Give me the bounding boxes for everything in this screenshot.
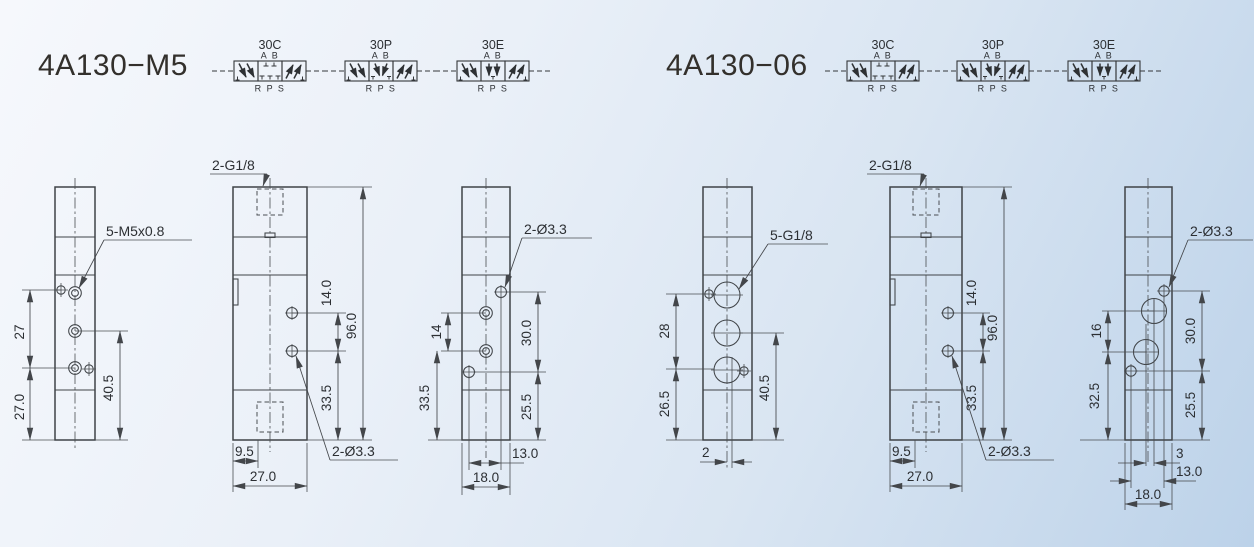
valve-symbol-30e: 30E A B R P S: [435, 38, 551, 94]
dim-height: 96.0: [985, 315, 1000, 341]
dim-stagger: 3: [1176, 446, 1184, 461]
symbol-top-ports: A B: [874, 51, 893, 61]
callout-mount-holes: 2-Ø3.3: [1169, 223, 1253, 287]
symbol-bottom-ports: R P S: [978, 84, 1009, 94]
view-m5-front: 27 27.0 40.5 5-M5x0.8: [12, 178, 192, 450]
dim-hole-pitch: 14.0: [319, 280, 334, 306]
dim-hole-span: 13.0: [1176, 464, 1202, 479]
symbol-top-ports: A B: [372, 51, 391, 61]
callout-mount-holes: 2-Ø3.3: [505, 221, 592, 287]
symbol-top-ports: A B: [1095, 51, 1114, 61]
symbol-top-ports: A B: [484, 51, 503, 61]
view-06-side: 14.0 96.0 33.5 9.5 27.0 2-G1/8 2-Ø3.3: [867, 157, 1054, 492]
callout-thread: 5-M5x0.8: [79, 223, 192, 288]
model-title: 4A130−M5: [38, 49, 188, 82]
dim-hole-bottom: 33.5: [319, 385, 334, 411]
callout-label: 2-Ø3.3: [524, 221, 567, 237]
dim-hole-pitch: 14.0: [964, 280, 979, 306]
symbol-bottom-ports: R P S: [255, 84, 286, 94]
dim-port-pitch: 16: [1089, 323, 1104, 338]
valve-symbol-30c: 30C A B R P S: [212, 38, 328, 94]
dim-port-pitch: 14: [429, 324, 444, 340]
callout-label: 2-Ø3.3: [988, 443, 1031, 459]
valve-symbol-30c: 30C A B R P S: [825, 38, 941, 94]
dim-port-offset: 9.5: [892, 444, 911, 459]
dim-bottom-port: 27.0: [12, 394, 27, 420]
callout-label: 2-Ø3.3: [332, 443, 375, 459]
valve-symbol-30p: 30P A B R P S: [323, 38, 439, 94]
dim-port-pitch: 28: [657, 323, 672, 338]
dim-port-pitch: 27: [12, 324, 27, 339]
dim-port-bottom: 32.5: [1087, 383, 1102, 409]
symbol-top-ports: A B: [984, 51, 1003, 61]
dim-bottom-port: 26.5: [657, 391, 672, 417]
dim-height: 96.0: [344, 313, 359, 339]
callout-label: 5-M5x0.8: [106, 223, 165, 239]
callout-mount-holes: 2-Ø3.3: [296, 356, 398, 460]
dim-right: 40.5: [757, 375, 772, 401]
dim-hole-pitch: 30.0: [519, 320, 534, 346]
dim-port-offset: 9.5: [235, 444, 254, 459]
callout-label: 2-Ø3.3: [1190, 223, 1233, 239]
dimensions: 14 33.5 30.0 25.5 13.0 18.0: [417, 292, 546, 495]
mount-holes: [285, 306, 299, 358]
view-06-front: 28 26.5 40.5 2 5-G1/8: [657, 178, 828, 468]
callout-label: 5-G1/8: [770, 227, 813, 243]
dim-hole-bottom: 25.5: [519, 394, 534, 420]
callout-top-port: 2-G1/8: [867, 157, 924, 186]
technical-drawing: 4A130−M5 30C A B R P S 30P A B R P S 30E…: [0, 0, 1254, 547]
symbol-bottom-ports: R P S: [366, 84, 397, 94]
dim-hole-span: 13.0: [512, 446, 538, 461]
dim-hole-bottom: 33.5: [964, 385, 979, 411]
valve-datasheet: 4A130−M5 30C A B R P S 30P A B R P S 30E…: [0, 0, 1254, 547]
symbol-top-ports: A B: [261, 51, 280, 61]
dimensions: 28 26.5 40.5 2: [657, 294, 784, 462]
dim-port-bottom: 33.5: [417, 385, 432, 411]
dim-width: 27.0: [250, 469, 276, 484]
view-06-back: 16 32.5 30.0 25.5 3 13.0 18.0 2-Ø3.3: [1080, 178, 1253, 510]
callout-label: 2-G1/8: [869, 157, 912, 173]
dimensions: 16 32.5 30.0 25.5 3 13.0 18.0: [1080, 291, 1210, 510]
view-m5-back: 14 33.5 30.0 25.5 13.0 18.0 2-Ø3.3: [417, 178, 592, 495]
dim-stagger: 2: [702, 445, 710, 460]
dim-width: 27.0: [907, 469, 933, 484]
dim-width: 18.0: [1135, 487, 1161, 502]
callout-label: 2-G1/8: [212, 157, 255, 173]
view-m5-side: 14.0 96.0 33.5 9.5 27.0 2-G1/8 2-Ø3.3: [210, 157, 398, 492]
model-title: 4A130−06: [666, 49, 808, 82]
port-holes: [702, 282, 751, 383]
valve-symbol-30p: 30P A B R P S: [935, 38, 1051, 94]
symbol-bottom-ports: R P S: [1089, 84, 1120, 94]
group-4a130-06: 4A130−06 30C A B R P S 30P A B R P S 30E…: [657, 38, 1253, 510]
dim-hole-bottom: 25.5: [1183, 392, 1198, 418]
symbol-bottom-ports: R P S: [478, 84, 509, 94]
callout-top-port: 2-G1/8: [210, 157, 267, 186]
valve-symbol-30e: 30E A B R P S: [1046, 38, 1162, 94]
mount-holes: [941, 306, 955, 358]
dim-width: 18.0: [473, 470, 499, 485]
dim-right: 40.5: [101, 375, 116, 401]
group-4a130-m5: 4A130−M5 30C A B R P S 30P A B R P S 30E…: [12, 38, 592, 495]
dim-hole-pitch: 30.0: [1183, 318, 1198, 344]
symbol-bottom-ports: R P S: [868, 84, 899, 94]
